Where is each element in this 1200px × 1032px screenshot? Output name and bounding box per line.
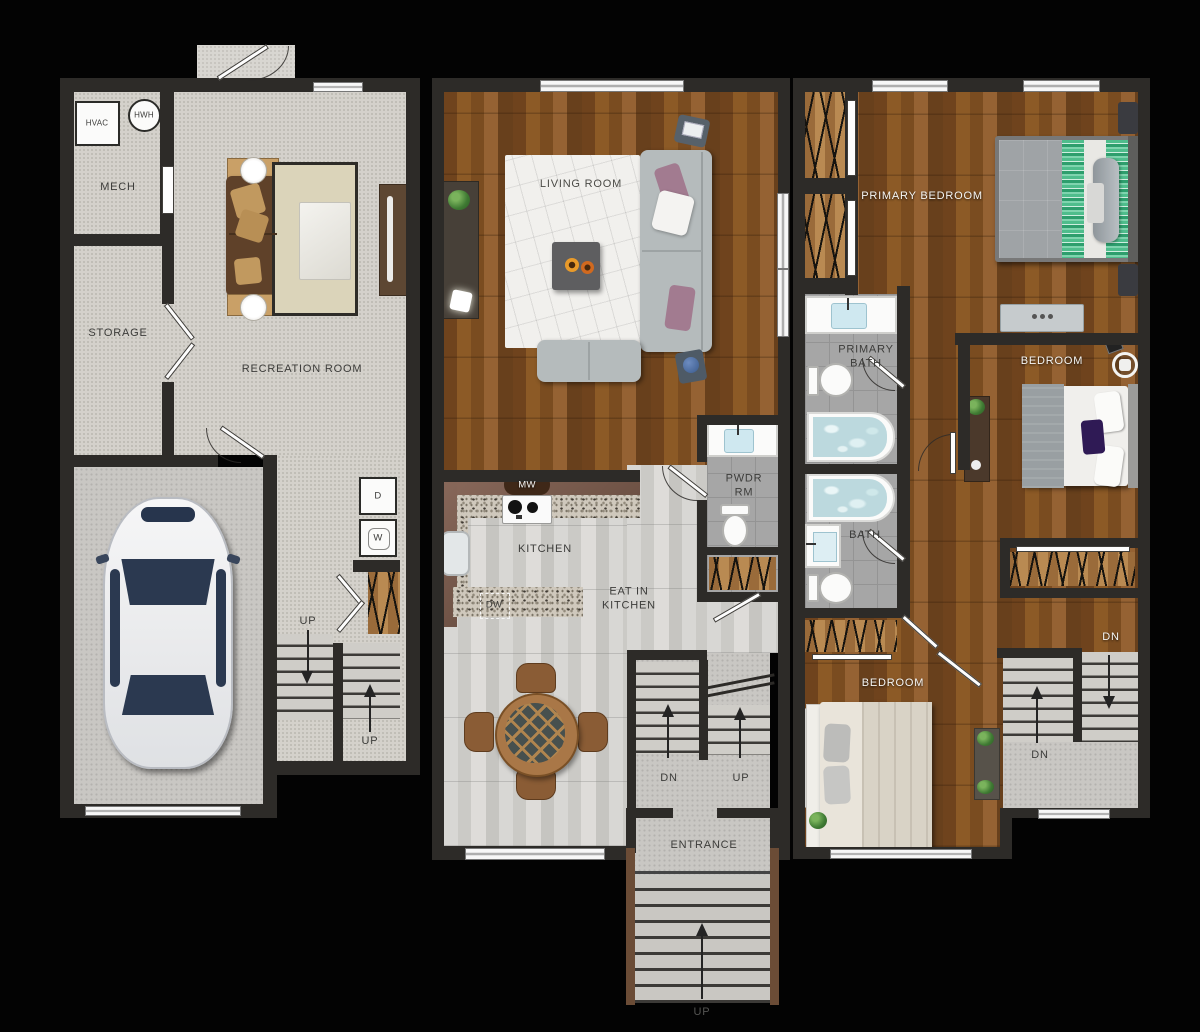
wall xyxy=(697,547,778,555)
kitchen-counter xyxy=(453,587,583,617)
wall-kitchen xyxy=(432,470,640,482)
stairs-dn-left xyxy=(1003,658,1073,742)
stair-arrow-down xyxy=(301,671,313,684)
faucet xyxy=(737,425,739,435)
wall xyxy=(697,500,707,592)
entry-stair-rail xyxy=(770,848,779,1005)
wall xyxy=(1000,808,1012,859)
closet-slide-door xyxy=(847,100,856,176)
burner xyxy=(508,500,522,514)
living-room-label: LIVING ROOM xyxy=(540,178,622,190)
up-label: UP xyxy=(300,615,317,627)
pillow xyxy=(234,257,263,286)
hvac-label: HVAC xyxy=(86,119,108,128)
burner xyxy=(527,502,538,513)
nightstand xyxy=(1118,102,1138,134)
pillow xyxy=(823,723,851,762)
stair-landing xyxy=(1003,742,1138,808)
chaise-seam xyxy=(588,342,590,380)
stair-arrow-line xyxy=(369,696,371,732)
wall-stair xyxy=(997,648,1079,658)
plant xyxy=(977,780,994,794)
closet-hangers xyxy=(709,557,776,590)
wall xyxy=(793,278,858,294)
mech-door xyxy=(162,166,174,214)
wall xyxy=(1000,548,1010,588)
primary-bed-runner xyxy=(1062,140,1084,258)
wall xyxy=(697,415,707,462)
stair-arrow-line xyxy=(739,719,741,758)
table-lamp xyxy=(240,294,267,321)
wall xyxy=(805,178,845,194)
eat-in-kitchen-label: EAT IN KITCHEN xyxy=(597,585,661,614)
bath-sink xyxy=(813,532,837,562)
wall xyxy=(162,246,174,304)
wall xyxy=(626,808,636,853)
car-windshield xyxy=(115,559,221,605)
storage-label: STORAGE xyxy=(88,327,147,339)
tv-screen xyxy=(387,196,393,282)
plant xyxy=(977,731,994,746)
primary-bedroom-door-leaf xyxy=(950,432,956,474)
entrance-label: ENTRANCE xyxy=(671,839,738,851)
window xyxy=(313,82,363,92)
stair-arrow-line xyxy=(307,630,309,672)
dresser-knob xyxy=(1040,314,1045,319)
stairs-up-right xyxy=(343,643,400,719)
closet-slide-door xyxy=(812,654,892,660)
hwh-label: HWH xyxy=(134,111,154,120)
wall-powder xyxy=(697,415,778,425)
dishwasher-label: DW xyxy=(486,600,502,611)
toilet-tank xyxy=(807,366,819,396)
pillow xyxy=(823,765,851,804)
recreation-room-label: RECREATION ROOM xyxy=(242,363,363,375)
dn-label: DN xyxy=(660,772,678,784)
wall-primary xyxy=(955,333,1138,345)
bedroom-label: BEDROOM xyxy=(862,677,924,689)
wall xyxy=(60,78,420,92)
dresser-knob xyxy=(1032,314,1037,319)
closet-slide-door xyxy=(847,200,856,276)
wall xyxy=(770,808,780,853)
wall xyxy=(406,78,420,775)
entry-up-label: UP xyxy=(694,1006,711,1018)
washer-label: W xyxy=(373,533,382,544)
stair-arrow-line xyxy=(1036,698,1038,743)
closet-hangers xyxy=(368,570,400,634)
wall-stair xyxy=(627,650,707,660)
stove-control xyxy=(516,515,522,519)
table-lamp xyxy=(240,157,267,184)
wall xyxy=(60,78,74,818)
wall xyxy=(1000,588,1138,598)
toilet-tank xyxy=(807,574,819,602)
entry-stair-rail xyxy=(626,848,635,1005)
dining-table-inlay xyxy=(505,703,565,763)
car-sunroof xyxy=(141,507,195,522)
wall xyxy=(958,345,970,470)
wall-garage xyxy=(263,455,277,818)
dryer-label: D xyxy=(374,491,381,502)
bath-label: BATH xyxy=(849,529,881,541)
car xyxy=(103,497,233,769)
stair-arrow-down xyxy=(1103,696,1115,709)
decor-bowl xyxy=(565,258,579,272)
dining-chair xyxy=(464,712,494,752)
decor-dish xyxy=(971,460,981,470)
kitchen-label: KITCHEN xyxy=(518,543,572,555)
duvet xyxy=(862,702,932,850)
primary-bed-quilt xyxy=(999,140,1062,258)
primary-sink xyxy=(831,303,867,329)
primary-bedroom-label: PRIMARY BEDROOM xyxy=(861,190,983,202)
car-side-glass xyxy=(216,569,226,687)
wall xyxy=(353,560,400,572)
plant xyxy=(448,190,470,210)
window xyxy=(465,848,605,860)
accent-pillow xyxy=(1081,419,1106,455)
headboard xyxy=(1128,384,1138,488)
cushion xyxy=(1087,183,1104,223)
wall-bath xyxy=(897,286,910,616)
up-label: UP xyxy=(362,735,379,747)
toilet-bowl xyxy=(819,572,853,604)
faucet xyxy=(806,543,816,545)
wall xyxy=(60,234,174,246)
garage-door xyxy=(85,806,241,816)
plant xyxy=(809,812,827,829)
dn-label: DN xyxy=(1102,631,1120,643)
wall xyxy=(162,382,174,459)
wall xyxy=(793,464,910,474)
exterior-mask xyxy=(1010,818,1150,860)
closet-hangers xyxy=(805,194,845,278)
window xyxy=(540,80,684,92)
kitchen-sink xyxy=(441,531,470,576)
closet-hangers xyxy=(805,620,897,652)
stair-rail-wall xyxy=(1073,648,1082,742)
wall xyxy=(1138,78,1150,818)
window xyxy=(872,80,948,92)
stair-rail-wall xyxy=(333,643,343,761)
wall xyxy=(60,455,218,467)
closet-slide-door xyxy=(1016,546,1130,552)
bathtub-water xyxy=(813,417,887,457)
closet-hangers xyxy=(805,90,845,178)
window xyxy=(1038,809,1110,819)
powder-room-label: PWDR RM xyxy=(721,472,767,501)
stair-arrow-line xyxy=(1108,655,1110,697)
decor-vase xyxy=(683,357,699,373)
bed-runner xyxy=(1022,384,1064,488)
floor-plan: HVAC HWH MECH STORAGE RECREATION ROOM D … xyxy=(0,0,1200,1032)
stair-rail-wall xyxy=(699,660,708,760)
lamp xyxy=(449,289,473,313)
step-edge xyxy=(635,871,770,874)
closet-hangers xyxy=(1008,552,1135,586)
dresser-knob xyxy=(1048,314,1053,319)
microwave-label: MW xyxy=(518,480,535,491)
coffee-table xyxy=(299,202,351,280)
faucet xyxy=(847,298,849,310)
car-side-glass xyxy=(110,569,120,687)
wall xyxy=(697,592,778,602)
mech-label: MECH xyxy=(100,181,136,193)
window xyxy=(830,849,972,859)
dining-chair xyxy=(578,712,608,752)
decor-bowl xyxy=(581,261,594,274)
window xyxy=(777,269,789,337)
stair-arrow-line xyxy=(667,716,669,758)
toilet-bowl xyxy=(722,514,748,547)
bathtub-water xyxy=(813,479,887,517)
nightstand xyxy=(1118,264,1138,296)
wall xyxy=(627,650,636,818)
primary-bath-label: PRIMARY BATH xyxy=(828,343,904,372)
hall-floor xyxy=(707,600,778,653)
wall xyxy=(277,761,420,775)
up-label: UP xyxy=(733,772,750,784)
wall xyxy=(717,808,778,818)
car-rear-window xyxy=(119,675,217,715)
powder-sink xyxy=(724,429,754,453)
headboard xyxy=(1128,136,1138,262)
entry-arrow-line xyxy=(701,935,703,999)
bedroom-label: BEDROOM xyxy=(1021,355,1083,367)
sofa-cushion-seam xyxy=(642,250,702,252)
dn-label: DN xyxy=(1031,749,1049,761)
wall xyxy=(793,608,910,618)
dining-chair xyxy=(516,663,556,693)
wall xyxy=(432,78,444,860)
window xyxy=(777,193,789,269)
window xyxy=(1023,80,1100,92)
clock-face xyxy=(1119,359,1131,371)
